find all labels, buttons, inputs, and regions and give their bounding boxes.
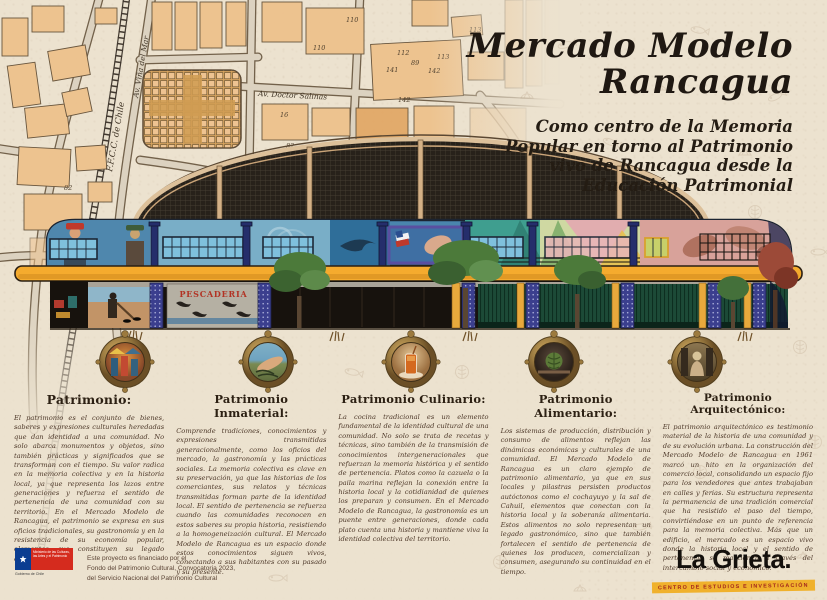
column-patrimonio-alimentario: Patrimonio Alimentario: Los sistemas de … [501, 392, 651, 577]
lot-number: 16 [280, 111, 288, 119]
column-heading: Patrimonio Inmaterial: [176, 392, 326, 420]
column-body: El patrimonio es el conjunto de bienes, … [14, 414, 164, 564]
poster: F.F.C.C. de Chile Av. Viña del Mar Av. D… [0, 0, 827, 600]
map-label-railway: F.F.C.C. de Chile [105, 101, 127, 173]
lot-number: 110 [313, 44, 325, 52]
map-market-block [143, 70, 241, 148]
subtitle: Como centro de la Memoria Popular en tor… [453, 117, 793, 196]
upper-windows [50, 234, 770, 262]
funding-line: del Servicio Nacional del Patrimonio Cul… [87, 574, 235, 584]
mural-figure-green-hat [126, 225, 144, 266]
subtitle-line: Popular en torno al Patrimonio [453, 137, 793, 157]
lot-number: 82 [64, 184, 72, 192]
lot-number: 82 [286, 142, 294, 150]
subtitle-line: Educación Patrimonial [453, 176, 793, 196]
lot-number: 142 [398, 96, 410, 104]
column-heading: Patrimonio Culinario: [338, 392, 488, 406]
subtitle-line: Como centro de la Memoria [453, 117, 793, 137]
medallion-statue [668, 331, 726, 393]
funding-line: Este proyecto es financiado por el [87, 554, 235, 564]
funding-line: Fondo del Patrimonio Cultural, Convocato… [87, 564, 235, 574]
mural-shark [340, 239, 376, 251]
lot-number: 112 [397, 49, 409, 57]
funding-text: Este proyecto es financiado por el Fondo… [87, 548, 235, 584]
page-title-line1: Mercado Modelo [453, 28, 793, 64]
ministry-label: Ministerio de las Culturas, las Artes y … [31, 548, 73, 570]
lot-number: 89 [411, 59, 419, 67]
column-heading: Patrimonio Arquitectónico: [663, 392, 813, 416]
government-label: Gobierno de Chile [15, 572, 73, 576]
lot-number: 141 [386, 66, 398, 74]
column-body: La cocina tradicional es un elemento fun… [338, 413, 488, 544]
column-body: Los sistemas de producción, distribución… [501, 427, 651, 577]
tree [717, 276, 749, 328]
title-block: Mercado Modelo Rancagua Como centro de l… [453, 28, 793, 196]
gobierno-de-chile-logo: Ministerio de las Culturas, las Artes y … [15, 548, 73, 576]
column-heading: Patrimonio: [14, 392, 164, 407]
column-patrimonio-culinario: Patrimonio Culinario: La cocina tradicio… [338, 392, 488, 577]
footer-left: Ministerio de las Culturas, las Artes y … [15, 548, 235, 584]
chile-coat-of-arms-icon [15, 548, 31, 570]
lot-number: 110 [346, 16, 358, 24]
page-title-line2: Rancagua [453, 64, 793, 100]
map-label-avenue1: Av. Viña del Mar [131, 35, 151, 99]
brand-name: La Grieta. [652, 546, 815, 572]
mural-figure-red-cap [64, 223, 86, 266]
upper-mural-band [47, 220, 791, 266]
subtitle-line: vivo de Rancagua desde la [453, 156, 793, 176]
la-grieta-logo: La Grieta. CENTRO DE ESTUDIOS E INVESTIG… [652, 546, 815, 591]
yellow-slab [15, 266, 802, 281]
brand-tagline-banner: CENTRO DE ESTUDIOS E INVESTIGACIÓN [652, 579, 815, 592]
column-heading: Patrimonio Alimentario: [501, 392, 651, 420]
tree-red [758, 242, 798, 328]
map-label-avenue2: Av. Doctor Salinas [257, 89, 328, 102]
